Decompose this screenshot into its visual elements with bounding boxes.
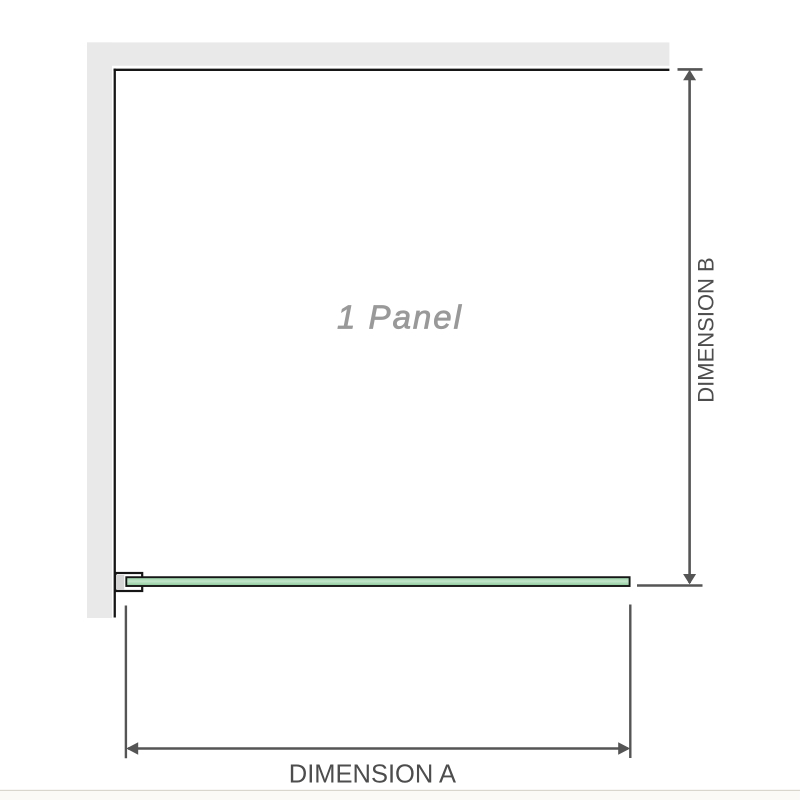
svg-text:1 Panel: 1 Panel bbox=[337, 299, 463, 336]
svg-text:DIMENSION B: DIMENSION B bbox=[694, 257, 719, 402]
svg-text:DIMENSION A: DIMENSION A bbox=[289, 761, 456, 789]
